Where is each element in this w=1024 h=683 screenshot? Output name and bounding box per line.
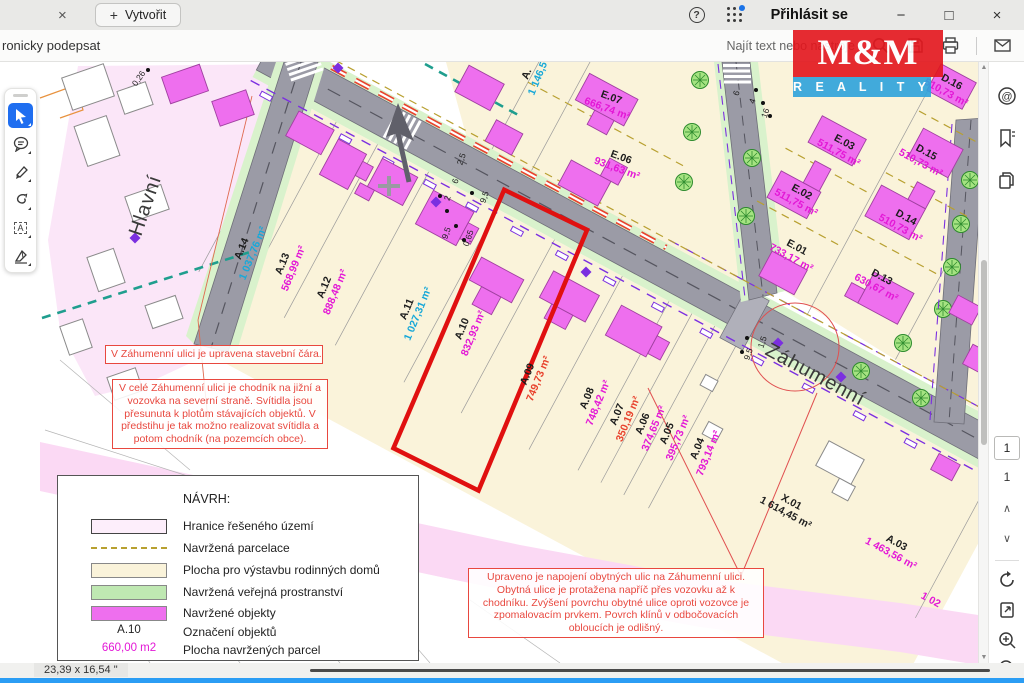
text-select-icon: A (14, 222, 26, 234)
page-thumbnails-icon[interactable] (997, 170, 1017, 190)
comment-tool-button[interactable] (8, 131, 33, 156)
maximize-button[interactable]: □ (936, 7, 962, 24)
apps-grid-icon[interactable] (727, 7, 743, 23)
legend-swatch-parcel-dash (91, 547, 167, 549)
print-icon[interactable] (941, 36, 960, 55)
notification-dot (739, 5, 745, 11)
page-total-label: 1 (989, 470, 1024, 484)
svg-text:@: @ (1001, 91, 1012, 103)
legend-label: Navržená parcelace (183, 541, 290, 555)
highlighter-icon (13, 164, 29, 180)
legend-swatch-boundary (91, 519, 167, 534)
highlight-tool-button[interactable] (8, 159, 33, 184)
panel-divider (995, 560, 1019, 561)
legend-label: Navržené objekty (183, 606, 276, 620)
legend-label: Plocha pro výstavbu rodinných domů (183, 563, 380, 577)
mm-reality-logo: M&M R E A L I T Y (793, 30, 943, 98)
legend-sample-id: A.10 (91, 624, 167, 639)
legend-label: Plocha navržených parcel (183, 643, 320, 657)
cursor-icon (13, 108, 29, 124)
legend-label: Označení objektů (183, 625, 276, 639)
legend-swatch-public (91, 585, 167, 600)
rotate-page-icon[interactable] (997, 570, 1017, 590)
close-window-button[interactable]: × (984, 7, 1010, 24)
sign-in-button[interactable]: Přihlásit se (771, 7, 848, 23)
comment-icon (13, 136, 29, 152)
map-annotation: V celé Záhumenní ulici je chodník na již… (112, 379, 328, 449)
logo-top-text: M&M (793, 30, 943, 77)
close-tab-icon[interactable]: × (58, 7, 67, 24)
legend-swatch-housing (91, 563, 167, 578)
pdf-viewer-window: × + Vytvořit ? Přihlásit se − □ × ronick… (0, 0, 1024, 683)
minimize-button[interactable]: − (888, 7, 914, 24)
panel-drag-handle[interactable] (13, 94, 28, 97)
title-bar: × + Vytvořit ? Přihlásit se − □ × (0, 0, 1024, 30)
email-icon[interactable] (993, 36, 1012, 55)
bookmarks-panel-icon[interactable] (997, 128, 1017, 148)
signature-pen-icon (13, 248, 29, 264)
select-tool-button[interactable] (8, 103, 33, 128)
zoom-in-icon[interactable] (997, 630, 1017, 650)
map-annotation: V Záhumenní ulici je upravena stavební č… (105, 345, 323, 364)
status-bar: 23,39 x 16,54 " (0, 663, 1024, 678)
vertical-scroll-thumb[interactable] (981, 260, 987, 445)
toolbar-divider (976, 37, 977, 55)
logo-bottom-text: R E A L I T Y (793, 77, 931, 97)
text-select-tool-button[interactable]: A (8, 215, 33, 240)
draw-tool-button[interactable] (8, 187, 33, 212)
comments-panel-icon[interactable]: @ (997, 86, 1017, 106)
right-side-panel: @ 1 ∧ ∨ (988, 62, 1024, 663)
quick-tools-panel: A (4, 88, 37, 273)
page-number-input[interactable] (994, 436, 1020, 460)
create-tab-button[interactable]: + Vytvořit (95, 3, 181, 27)
help-icon[interactable]: ? (689, 7, 705, 23)
legend-swatch-objects (91, 606, 167, 621)
legend-label: Navržená veřejná prostranství (183, 585, 343, 599)
document-canvas[interactable]: Hlavní Záhumenní A.141 037,76 m² A.13568… (0, 62, 978, 663)
legend-title: NÁVRH: (183, 492, 230, 506)
vertical-scrollbar[interactable]: ▲ ▼ (978, 62, 988, 663)
create-tab-label: Vytvořit (125, 8, 166, 22)
legend-sample-area: 660,00 m2 (91, 642, 167, 657)
previous-page-button[interactable]: ∧ (989, 502, 1024, 515)
horizontal-scroll-thumb[interactable] (310, 669, 990, 672)
map-annotation: Upraveno je napojení obytných ulic na Zá… (468, 568, 764, 638)
taskbar-edge (0, 678, 1024, 683)
sign-document-label: ronicky podepsat (2, 38, 100, 53)
export-page-icon[interactable] (997, 600, 1017, 620)
page-size-label: 23,39 x 16,54 " (34, 663, 128, 677)
plus-icon: + (110, 7, 118, 23)
lasso-icon (13, 192, 29, 208)
next-page-button[interactable]: ∨ (989, 532, 1024, 545)
legend-label: Hranice řešeného území (183, 519, 314, 533)
map-legend: NÁVRH: Hranice řešeného území Navržená p… (57, 475, 419, 661)
fill-sign-tool-button[interactable] (8, 243, 33, 268)
